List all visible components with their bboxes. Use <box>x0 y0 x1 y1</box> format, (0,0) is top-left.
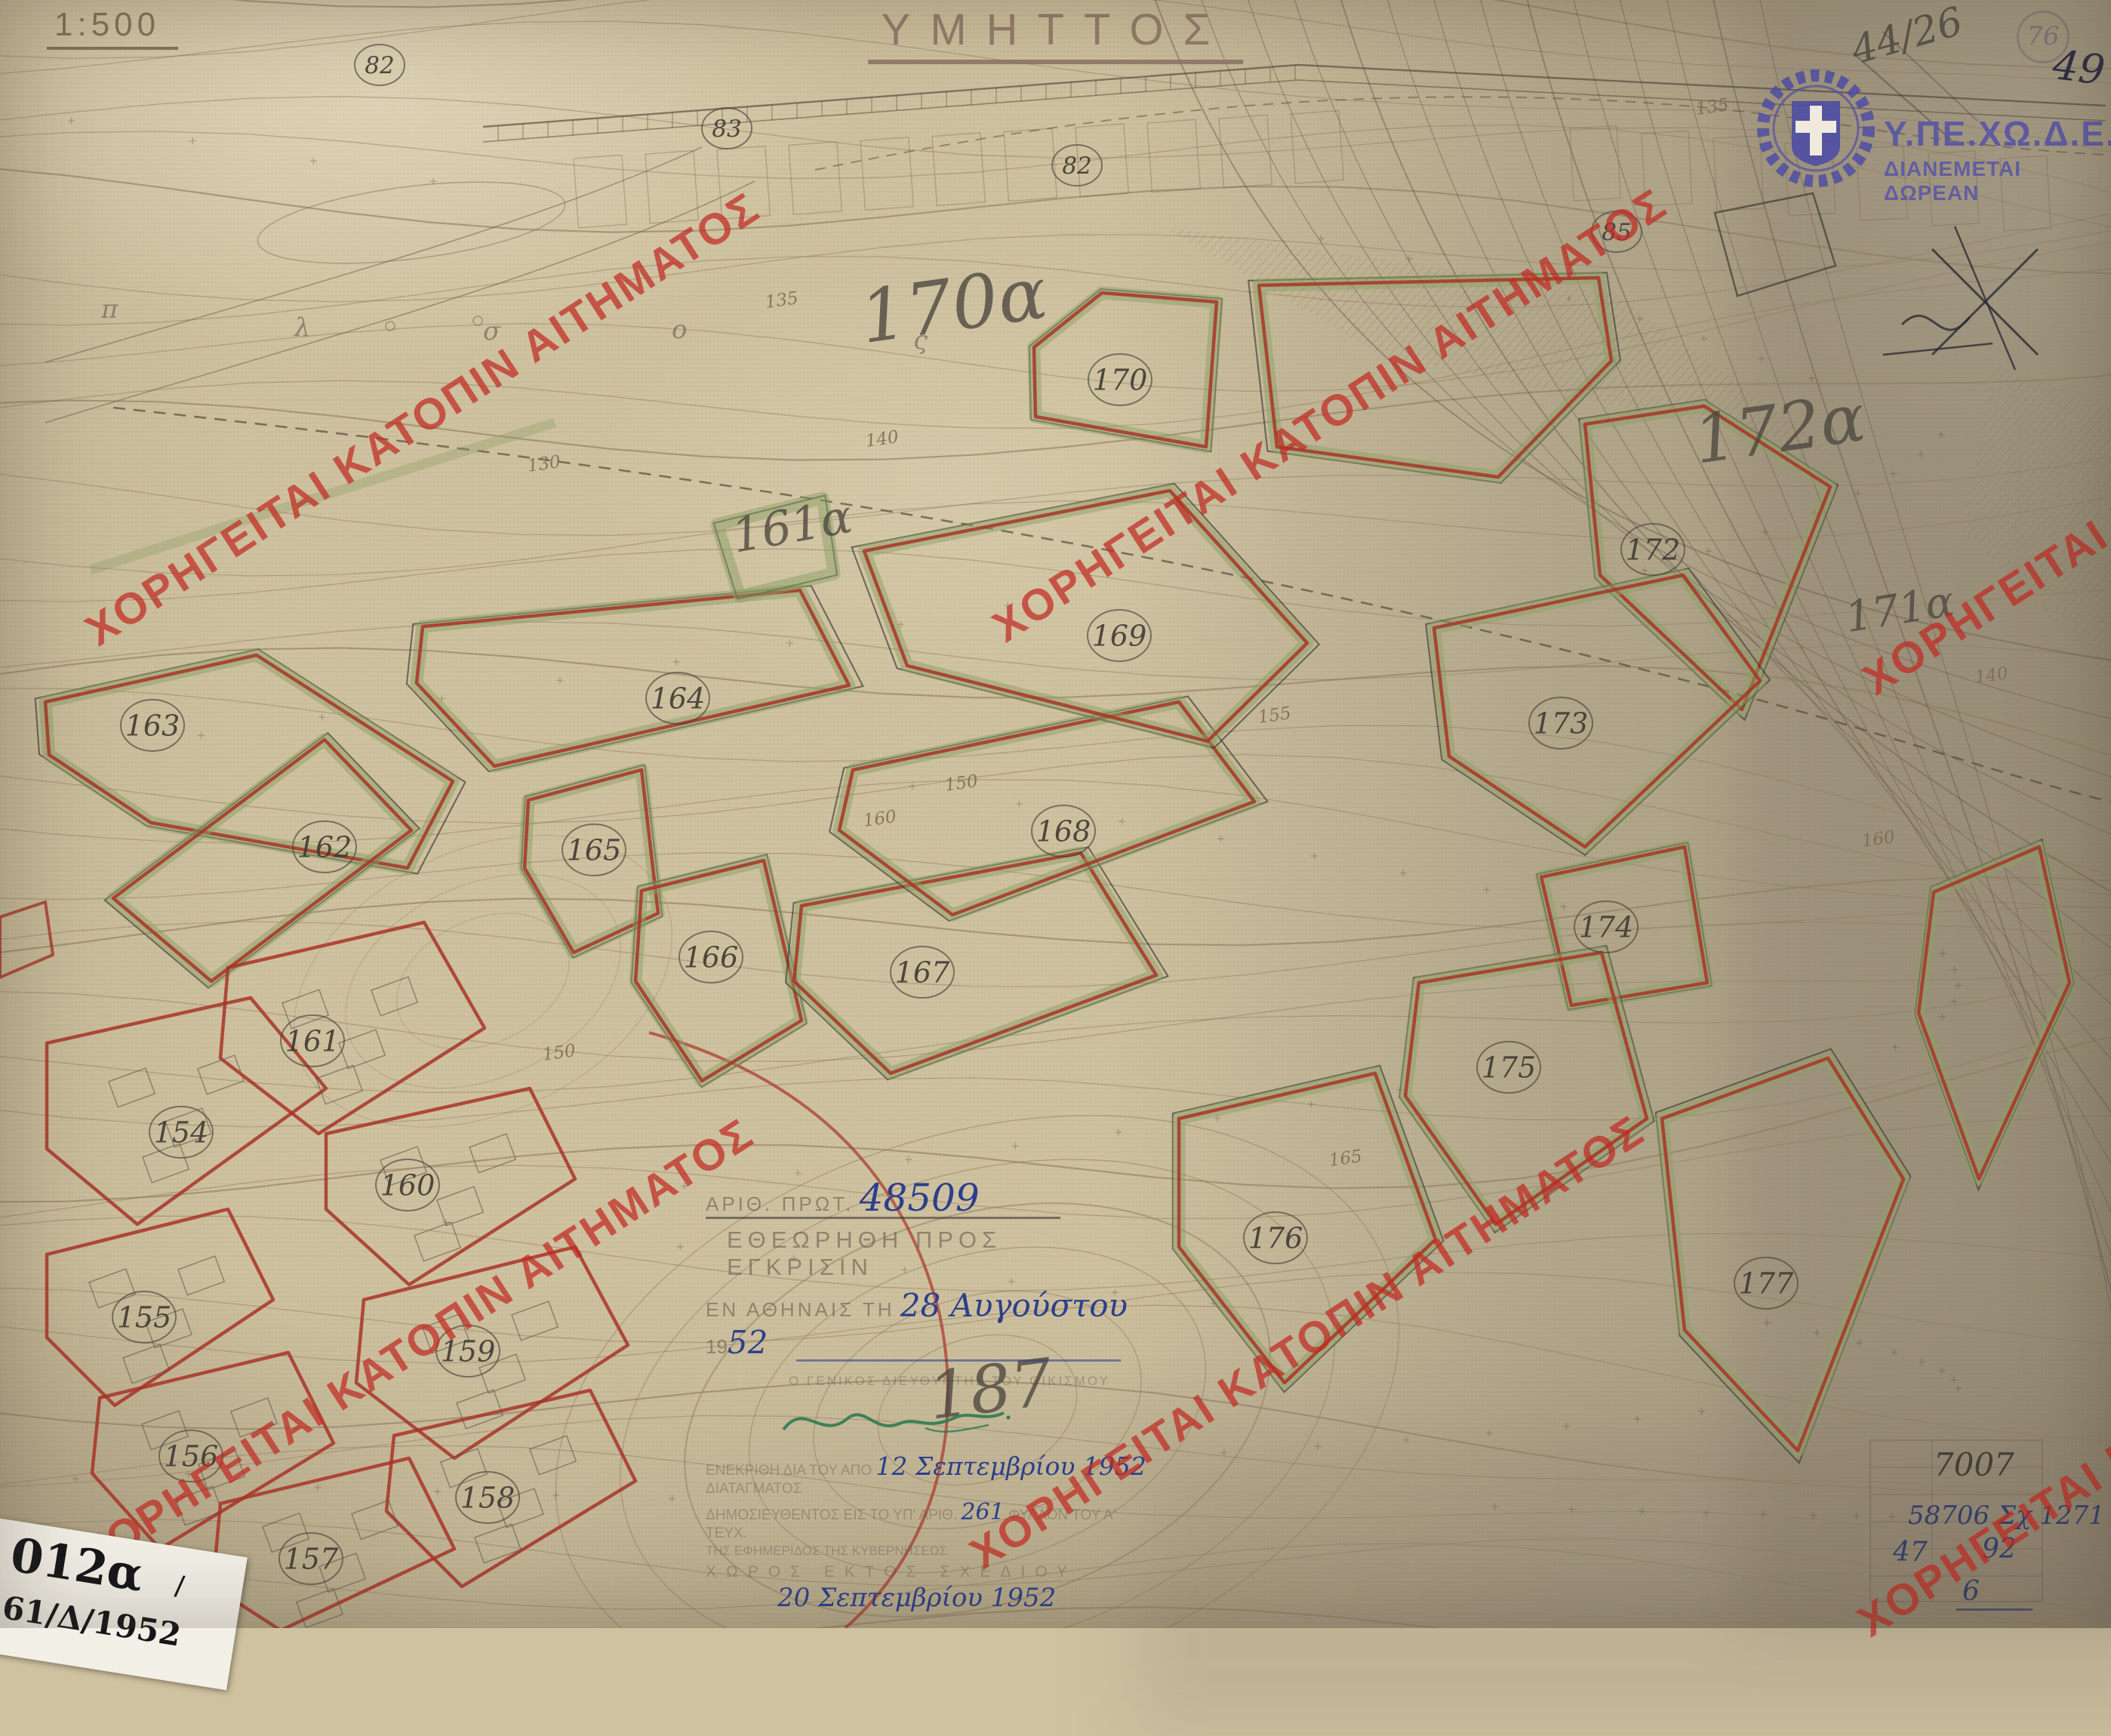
block-number-label: 164 <box>651 682 706 715</box>
scale-label: 1:500 <box>47 6 178 50</box>
block-number-label: 172 <box>1626 533 1681 566</box>
block-number-label: 166 <box>684 940 739 974</box>
block-number-label: 154 <box>154 1116 209 1149</box>
survey-note-47: 47 <box>1893 1537 1928 1568</box>
contour-label: 140 <box>864 427 900 451</box>
stray-letter: ς <box>913 325 928 356</box>
handwritten-date-2: 20 Σεπτεμβρίου 1952 <box>777 1583 1056 1613</box>
contour-label: 150 <box>541 1041 577 1065</box>
block-number-label: 155 <box>117 1300 172 1334</box>
pencil-annotation: 171α <box>1842 577 1958 642</box>
contour-label: 155 <box>1257 703 1292 728</box>
ink-scribbles <box>1853 32 2042 1602</box>
stray-letter: λ <box>293 312 311 343</box>
stray-letter: ο <box>672 315 687 345</box>
block-number-label: 82 <box>1062 152 1091 180</box>
ministry-distribution-note: ΔΙΑΝΕΜΕΤΑΙ ΔΩΡΕΑΝ <box>1884 157 2111 205</box>
ministry-name: Υ.ΠΕ.ΧΩ.Δ.Ε. <box>1884 113 2111 154</box>
block-number-label: 83 <box>712 115 741 143</box>
survey-note-6: 6 <box>1956 1576 2033 1611</box>
zone-note: ΧΩΡΟΣ ΕΚΤΟΣ ΣΧΕΔΙΟΥ <box>706 1563 1159 1581</box>
block-number-label: 85 <box>1602 219 1631 246</box>
handwritten-note-49: 49 <box>2050 41 2107 94</box>
block-number-label: 157 <box>284 1542 339 1575</box>
approval-suffix: ΔΙΑΤΑΓΜΑΤΟΣ <box>706 1481 802 1497</box>
contour-label: 160 <box>1860 827 1896 851</box>
contour-label: 140 <box>1974 663 2009 688</box>
block-number-label: 167 <box>895 956 950 989</box>
block-number-label: 175 <box>1482 1051 1537 1084</box>
contour-label: 160 <box>862 807 897 831</box>
gazette-prefix: ΔΗΜΟΣΙΕΥΘΕΝΤΟΣ ΕΙΣ ΤΟ ΥΠ' ΑΡΙΘ. <box>706 1507 957 1523</box>
block-number-label: 168 <box>1036 814 1091 848</box>
contour-label: 150 <box>943 771 979 796</box>
survey-number-7007: 7007 <box>1934 1446 2014 1483</box>
stamp-underline-2 <box>796 1359 1121 1362</box>
page-title: ΥΜΗΤΤΟΣ <box>868 5 1244 64</box>
block-number-label: 162 <box>297 830 352 863</box>
block-number-label: 163 <box>125 709 180 742</box>
block-number-label: 158 <box>460 1481 515 1514</box>
block-number-label: 173 <box>1534 706 1589 740</box>
handwritten-year: 52 <box>728 1324 768 1361</box>
signature-icon <box>777 1390 1019 1446</box>
handwritten-gazette-number: 261 <box>961 1499 1004 1525</box>
survey-reference: 58706 Σχ 1271 <box>1908 1501 2105 1531</box>
block-number-label: 169 <box>1092 619 1147 652</box>
block-number-label: 177 <box>1739 1267 1794 1300</box>
sheet-number: 012α <box>7 1527 147 1602</box>
gazette-line-2: ΤΗΣ ΕΦΗΜΕΡΙΔΟΣ ΤΗΣ ΚΥΒΕΡΝΗΣΕΩΣ <box>706 1544 1159 1559</box>
contour-label: 165 <box>1328 1147 1363 1171</box>
pencil-annotation: 170α <box>855 251 1052 360</box>
block-number-label: 174 <box>1579 910 1634 943</box>
sheet-reference: 61/Δ/1952 <box>0 1589 229 1661</box>
block-number-label: 156 <box>164 1439 219 1473</box>
sheet-slash: / <box>173 1570 186 1604</box>
coat-of-arms-icon <box>1749 54 1885 205</box>
stray-letter: σ <box>483 316 501 346</box>
approval-prefix: ΕΝΕΚΡΙΘΗ ΔΙΑ ΤΟΥ ΑΠΟ <box>706 1463 872 1479</box>
block-number-label: 160 <box>380 1168 435 1202</box>
block-number-label: 170 <box>1093 363 1148 396</box>
block-number-label: 159 <box>441 1334 496 1368</box>
place-label: ΕΝ ΑΘΗΝΑΙΣ ΤΗ <box>706 1298 895 1321</box>
stray-letter: π <box>100 294 118 325</box>
protocol-number: 48509 <box>860 1176 980 1220</box>
block-number-label: 176 <box>1248 1221 1303 1254</box>
block-number-label: 161 <box>285 1024 340 1057</box>
block-number-label: 165 <box>567 833 622 866</box>
review-line: ΕΘΕΩΡΗΘΗ ΠΡΟΣ ΕΓΚΡΙΣΙΝ <box>727 1227 1159 1281</box>
handwritten-date-1: 28 Αυγούστου <box>900 1287 1128 1324</box>
survey-note-92: 92 <box>1982 1534 2017 1565</box>
contour-label: 135 <box>764 288 799 312</box>
protocol-label: ΑΡΙΘ. ΠΡΩΤ. <box>706 1193 854 1215</box>
year-prefix: 19 <box>706 1335 728 1358</box>
approval-stamp: ΑΡΙΘ. ΠΡΩΤ. 48509 ΕΘΕΩΡΗΘΗ ΠΡΟΣ ΕΓΚΡΙΣΙΝ… <box>706 1176 1159 1613</box>
block-number-label: 82 <box>365 52 394 79</box>
handwritten-decree-date: 12 Σεπτεμβρίου 1952 <box>875 1451 1146 1481</box>
contour-label: 135 <box>1694 95 1730 119</box>
official-title: Ο ΓΕΝΙΚΟΣ ΔΙΕΥΘΥΝΤΗΣ ΤΟΥ ΟΙΚΙΣΜΟΥ <box>789 1374 1159 1389</box>
contour-label: 130 <box>526 452 562 476</box>
